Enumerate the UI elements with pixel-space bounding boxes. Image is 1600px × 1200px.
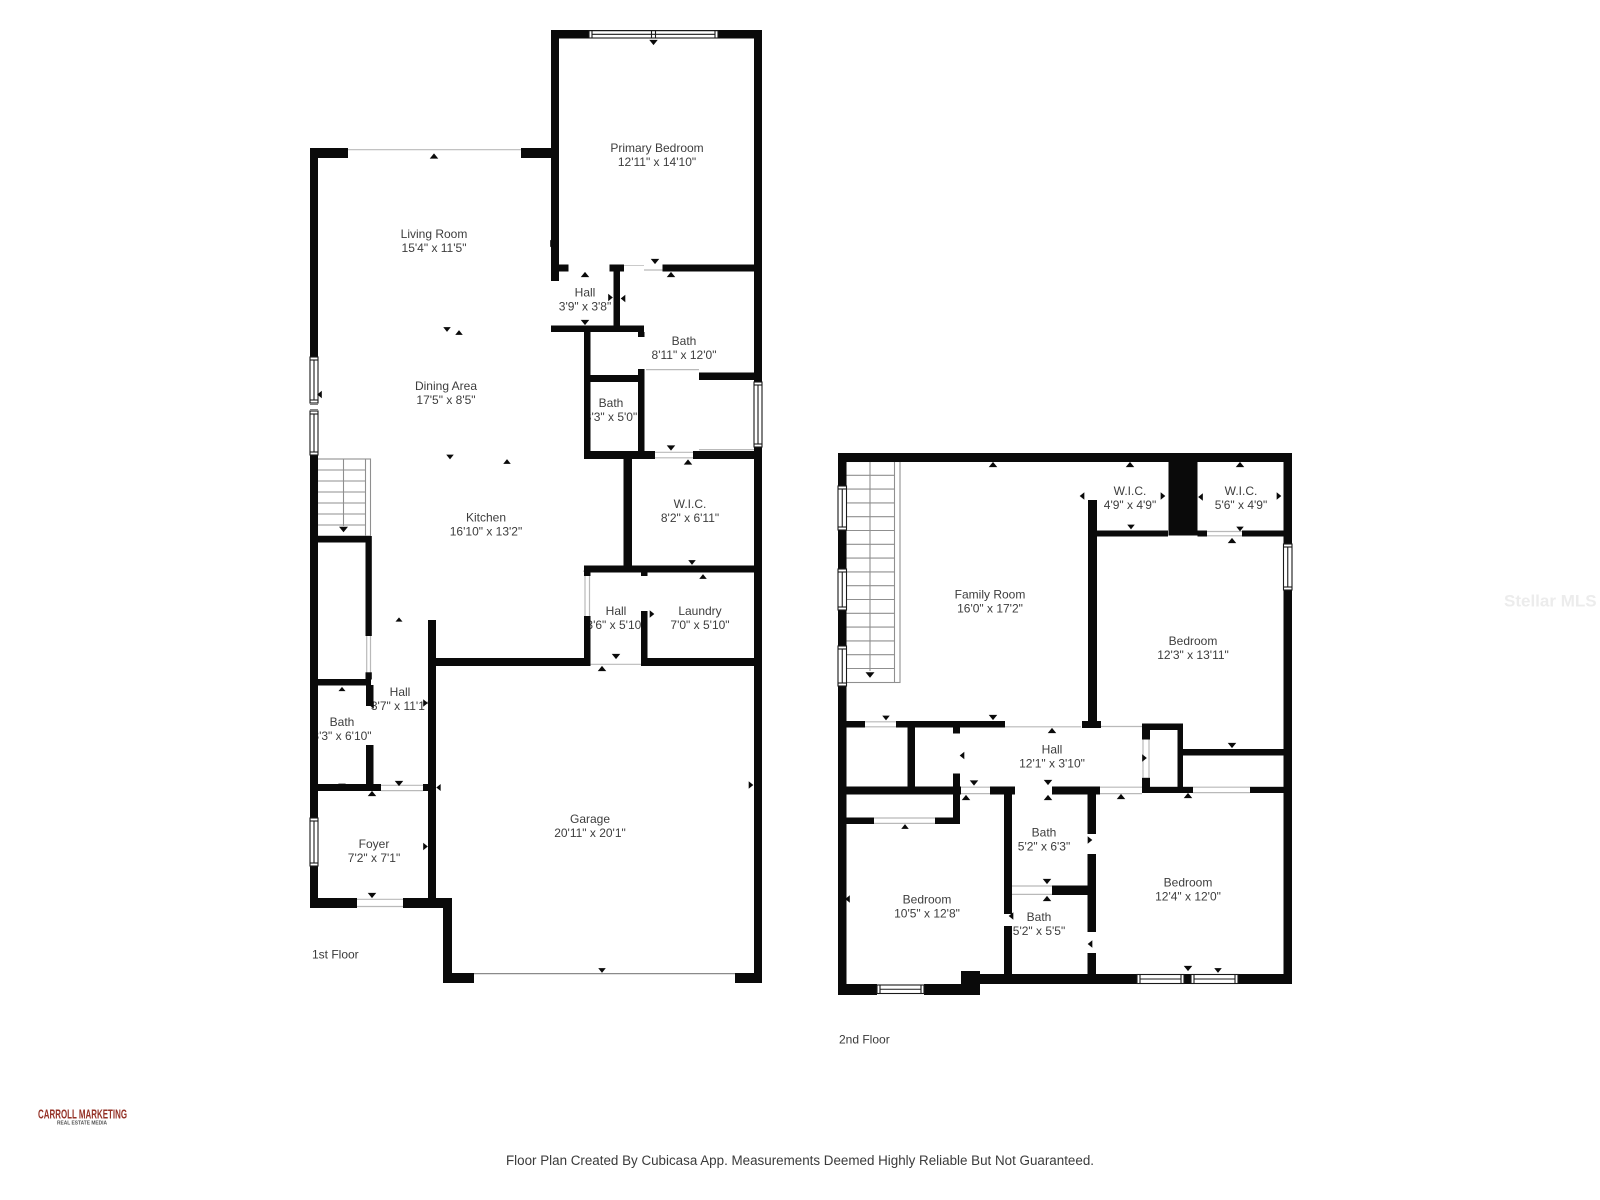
svg-text:7'0" x 5'10": 7'0" x 5'10": [670, 618, 729, 632]
svg-text:17'5" x 8'5": 17'5" x 8'5": [416, 393, 475, 407]
svg-text:16'0" x 17'2": 16'0" x 17'2": [957, 602, 1023, 616]
svg-text:W.I.C.: W.I.C.: [674, 497, 707, 511]
svg-text:3'7" x 11'1": 3'7" x 11'1": [371, 699, 429, 713]
svg-text:20'11" x 20'1": 20'11" x 20'1": [554, 826, 626, 840]
svg-text:1st Floor: 1st Floor: [312, 948, 359, 962]
svg-text:10'5" x 12'8": 10'5" x 12'8": [894, 907, 960, 921]
svg-text:Living Room: Living Room: [401, 227, 468, 241]
svg-text:W.I.C.: W.I.C.: [1225, 484, 1258, 498]
svg-text:Laundry: Laundry: [678, 604, 721, 618]
svg-text:7'2" x 7'1": 7'2" x 7'1": [348, 851, 400, 865]
svg-text:Garage: Garage: [570, 812, 610, 826]
svg-text:3'9" x 3'8": 3'9" x 3'8": [559, 300, 611, 314]
svg-text:4'9" x 4'9": 4'9" x 4'9": [1104, 498, 1156, 512]
svg-text:Bath: Bath: [330, 715, 355, 729]
svg-text:3'6" x 5'10": 3'6" x 5'10": [586, 618, 645, 632]
svg-text:W.I.C.: W.I.C.: [1114, 484, 1147, 498]
svg-text:Primary Bedroom: Primary Bedroom: [610, 141, 703, 155]
svg-text:Bedroom: Bedroom: [903, 893, 952, 907]
svg-text:Foyer: Foyer: [359, 837, 390, 851]
svg-text:Hall: Hall: [575, 286, 596, 300]
svg-text:Hall: Hall: [390, 685, 411, 699]
svg-text:Bedroom: Bedroom: [1164, 876, 1213, 890]
svg-text:Stellar MLS: Stellar MLS: [1504, 592, 1597, 611]
svg-text:Family Room: Family Room: [955, 588, 1026, 602]
svg-text:Bath: Bath: [599, 396, 624, 410]
svg-text:Bedroom: Bedroom: [1169, 634, 1218, 648]
svg-text:3'3" x 6'10": 3'3" x 6'10": [312, 729, 371, 743]
svg-text:12'1" x 3'10": 12'1" x 3'10": [1019, 757, 1085, 771]
svg-text:2nd Floor: 2nd Floor: [839, 1033, 890, 1047]
svg-text:5'2" x 6'3": 5'2" x 6'3": [1018, 840, 1070, 854]
svg-text:Kitchen: Kitchen: [466, 511, 506, 525]
svg-text:12'3" x 13'11": 12'3" x 13'11": [1157, 648, 1229, 662]
svg-text:Bath: Bath: [672, 334, 697, 348]
svg-text:12'4" x 12'0": 12'4" x 12'0": [1155, 890, 1221, 904]
svg-text:Floor Plan Created By Cubicasa: Floor Plan Created By Cubicasa App. Meas…: [506, 1153, 1094, 1168]
svg-text:Hall: Hall: [1042, 743, 1063, 757]
svg-text:CARROLL MARKETING: CARROLL MARKETING: [38, 1108, 127, 1122]
svg-text:Bath: Bath: [1032, 826, 1057, 840]
svg-text:5'6" x 4'9": 5'6" x 4'9": [1215, 498, 1267, 512]
svg-text:8'2" x 6'11": 8'2" x 6'11": [661, 511, 719, 525]
svg-text:REAL ESTATE MEDIA: REAL ESTATE MEDIA: [57, 1121, 107, 1127]
svg-text:5'2" x 5'5": 5'2" x 5'5": [1013, 924, 1065, 938]
svg-text:Dining Area: Dining Area: [415, 379, 477, 393]
svg-text:Bath: Bath: [1027, 910, 1052, 924]
svg-text:15'4" x 11'5": 15'4" x 11'5": [402, 241, 467, 255]
svg-text:16'10" x 13'2": 16'10" x 13'2": [450, 525, 523, 539]
svg-text:12'11" x 14'10": 12'11" x 14'10": [618, 155, 696, 169]
svg-text:8'11" x 12'0": 8'11" x 12'0": [652, 348, 717, 362]
svg-text:3'3" x 5'0": 3'3" x 5'0": [585, 410, 637, 424]
svg-text:Hall: Hall: [606, 604, 627, 618]
